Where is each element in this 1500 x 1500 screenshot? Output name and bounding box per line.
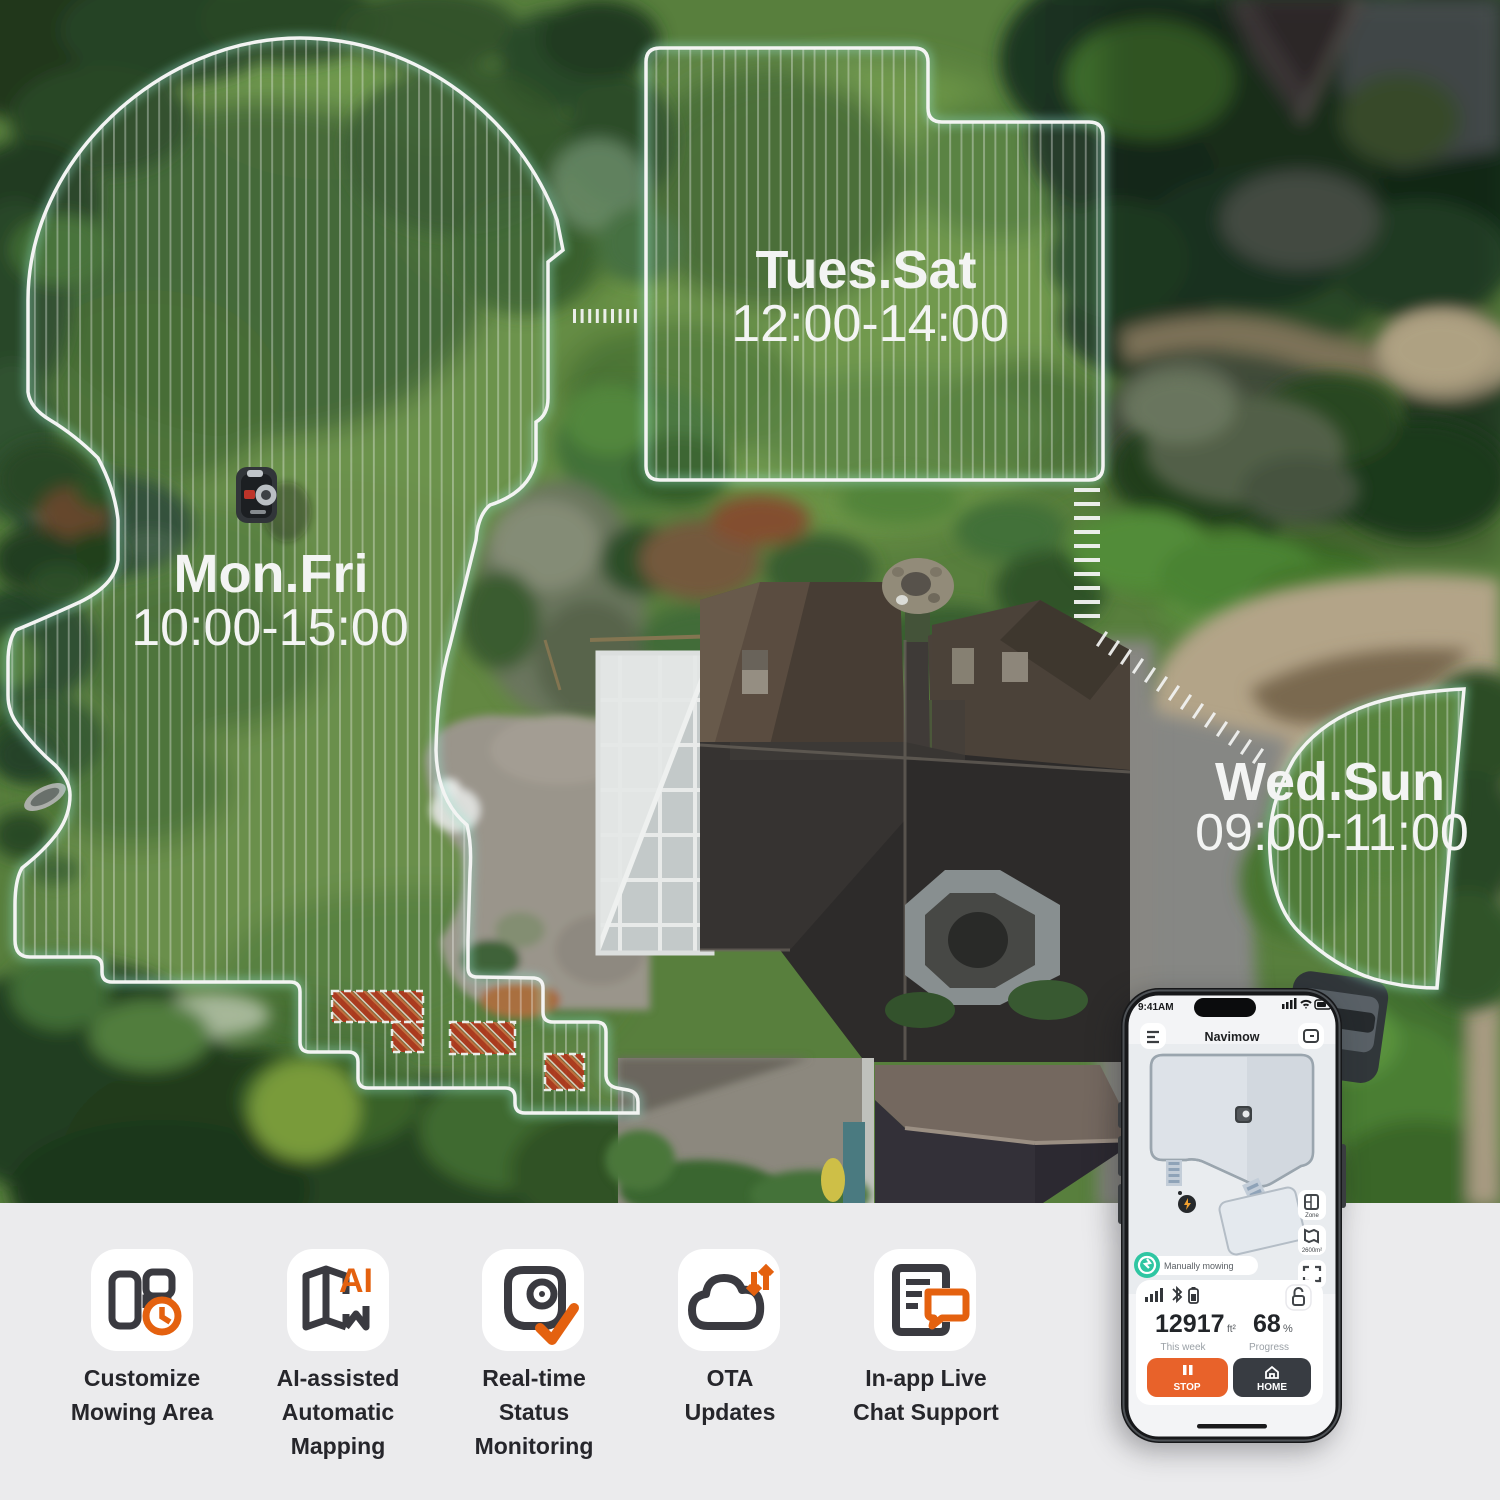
svg-text:9:41AM: 9:41AM: [1138, 1002, 1174, 1013]
svg-text:HOME: HOME: [1257, 1382, 1287, 1393]
svg-text:Zone: Zone: [1305, 1213, 1319, 1219]
svg-text:This week: This week: [1160, 1342, 1206, 1353]
svg-text:STOP: STOP: [1173, 1382, 1200, 1393]
svg-text:Navimow: Navimow: [1205, 1030, 1260, 1044]
svg-text:Progress: Progress: [1249, 1342, 1289, 1353]
svg-text:Manually mowing: Manually mowing: [1164, 1261, 1234, 1271]
svg-text:ft²: ft²: [1227, 1324, 1237, 1335]
svg-text:2600m²: 2600m²: [1302, 1248, 1322, 1254]
svg-text:AI: AI: [339, 1262, 373, 1300]
svg-text:68: 68: [1253, 1310, 1281, 1338]
svg-text:%: %: [1283, 1323, 1293, 1335]
svg-text:12917: 12917: [1155, 1310, 1225, 1338]
